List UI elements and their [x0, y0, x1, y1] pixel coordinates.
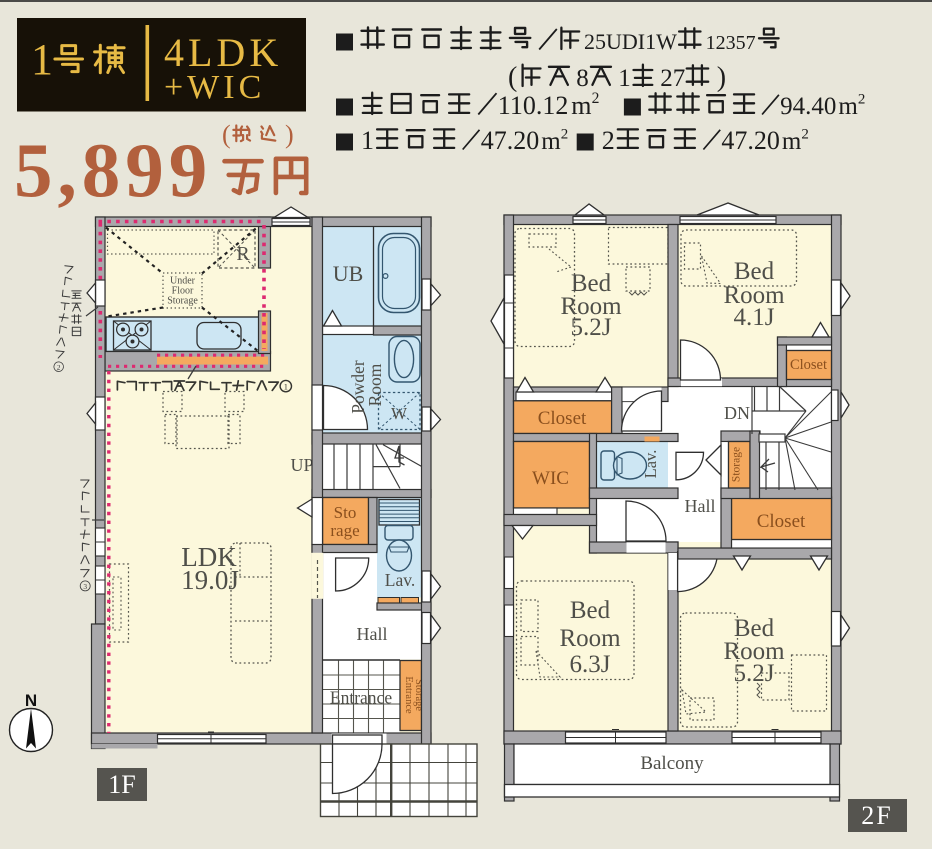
svg-text:3: 3 [83, 582, 87, 591]
svg-text:m: m [838, 93, 858, 120]
svg-text:2: 2 [858, 92, 866, 108]
svg-text:Closet: Closet [757, 511, 806, 532]
svg-text:5.2J: 5.2J [734, 660, 775, 687]
svg-text:2: 2 [561, 127, 569, 143]
svg-text:Storage: Storage [167, 296, 198, 307]
svg-text:Sto: Sto [334, 503, 357, 522]
svg-text:47.20: 47.20 [721, 126, 780, 155]
svg-text:W: W [391, 404, 408, 423]
svg-text:1F: 1F [108, 770, 135, 799]
svg-text:N: N [25, 691, 37, 710]
svg-text:m: m [541, 128, 561, 155]
svg-text:94.40: 94.40 [780, 93, 836, 120]
svg-text:5,899: 5,899 [14, 127, 212, 213]
svg-text:1: 1 [31, 35, 53, 84]
svg-text:12357: 12357 [706, 32, 756, 54]
svg-text:1: 1 [618, 65, 631, 92]
svg-text:5.2J: 5.2J [571, 314, 612, 341]
svg-text:47.20: 47.20 [481, 126, 540, 155]
svg-text:Lav.: Lav. [385, 570, 415, 590]
svg-text:27: 27 [660, 65, 685, 92]
svg-text:110.12: 110.12 [498, 91, 569, 120]
svg-text:Entrance: Entrance [330, 688, 392, 708]
svg-text:Room: Room [559, 625, 621, 652]
svg-text:Closet: Closet [538, 408, 587, 429]
svg-text:2: 2 [56, 364, 61, 372]
svg-text:Entrance: Entrance [403, 676, 414, 714]
svg-text:2F: 2F [861, 801, 892, 830]
svg-text:2: 2 [801, 127, 809, 143]
svg-text:2: 2 [602, 126, 615, 155]
svg-text:25UDI1W: 25UDI1W [584, 29, 677, 54]
svg-text:UP: UP [290, 455, 313, 475]
svg-text:rage: rage [330, 521, 359, 540]
svg-text:Hall: Hall [357, 624, 388, 644]
svg-text:m: m [571, 91, 591, 120]
svg-text:WIC: WIC [532, 468, 569, 489]
svg-text:Bed: Bed [734, 258, 775, 285]
svg-text:(: ( [508, 62, 517, 93]
svg-text:Room: Room [365, 363, 385, 406]
svg-text:Storage: Storage [731, 447, 743, 482]
svg-text:19.0J: 19.0J [181, 565, 239, 595]
svg-text:Hall: Hall [685, 496, 716, 516]
svg-text:1: 1 [361, 126, 374, 155]
svg-text:UB: UB [333, 261, 364, 286]
svg-text:): ) [285, 120, 294, 149]
svg-text:Bed: Bed [570, 597, 611, 624]
svg-text:6.3J: 6.3J [570, 651, 611, 678]
svg-text:DN: DN [724, 403, 750, 423]
svg-text:4.1J: 4.1J [734, 304, 775, 331]
svg-text:+WIC: +WIC [164, 69, 265, 106]
svg-text:Lav.: Lav. [641, 450, 660, 479]
svg-text:m: m [782, 128, 802, 155]
svg-text:(: ( [222, 120, 231, 149]
svg-text:8: 8 [576, 65, 589, 92]
svg-text:Balcony: Balcony [640, 753, 704, 774]
svg-text:Closet: Closet [790, 357, 827, 373]
svg-text:2: 2 [592, 90, 600, 107]
svg-text:1: 1 [284, 383, 288, 392]
svg-text:): ) [717, 62, 726, 93]
svg-text:R: R [236, 243, 250, 265]
